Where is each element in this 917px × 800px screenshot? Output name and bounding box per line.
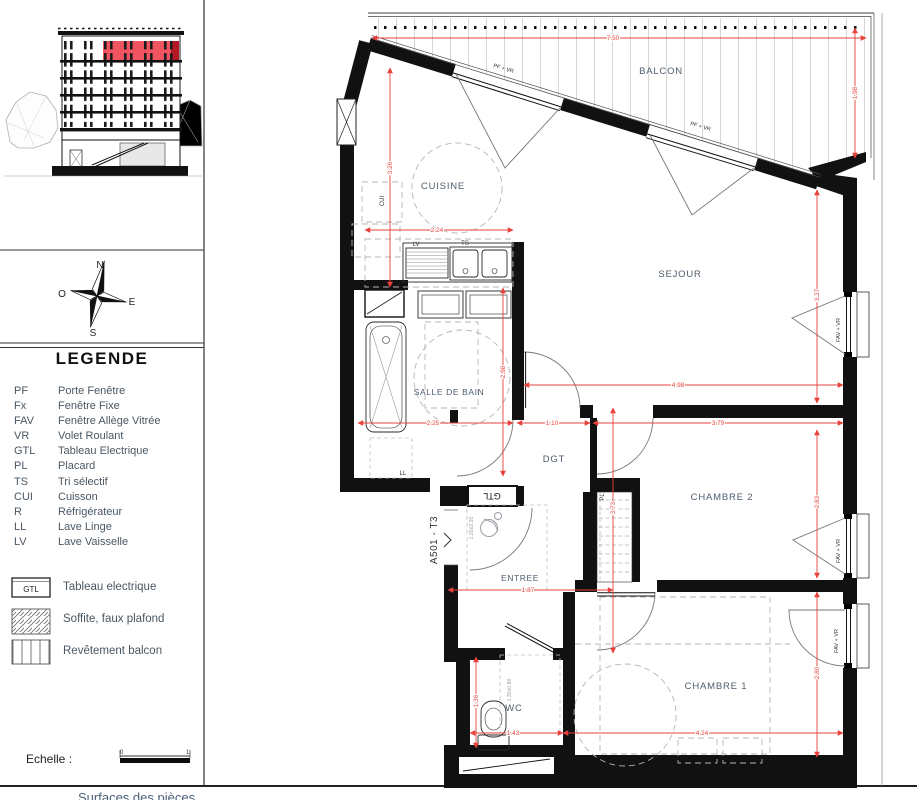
- dim-bath-width: 2.25: [427, 420, 440, 427]
- compass-west-label: O: [58, 289, 66, 300]
- legend-item: GTLTableau Electrique: [14, 444, 199, 459]
- legend-label: Tableau Electrique: [58, 444, 149, 459]
- compass-rose: N S E O: [58, 255, 136, 339]
- compass-south-label: S: [90, 328, 97, 339]
- legend-label: Porte Fenêtre: [58, 384, 125, 399]
- legend-item: FAVFenêtre Allège Vitrée: [14, 414, 199, 429]
- room-label-balcon: BALCON: [639, 66, 683, 77]
- dim-wc-height: 1.36: [473, 694, 480, 707]
- dim-ch1-height: 2.80: [814, 666, 821, 679]
- legend-item: CUICuisson: [14, 490, 199, 505]
- dim-sejour-height: 3.37: [814, 288, 821, 301]
- dim-hall-width: 1.87: [522, 587, 535, 594]
- legend-item: LVLave Vaisselle: [14, 535, 199, 550]
- building-elevation: [4, 29, 202, 177]
- legend-label: Volet Roulant: [58, 429, 123, 444]
- room-label-chambre1: CHAMBRE 1: [685, 681, 748, 692]
- dim-kitchen-width: 2.24: [431, 227, 444, 234]
- legend-label: Cuisson: [58, 490, 98, 505]
- dim-ch2-height: 2.83: [814, 495, 821, 508]
- legend-abbr: LL: [14, 520, 58, 535]
- legend-title: LEGENDE: [0, 349, 204, 369]
- dim-bath-height: 2.98: [500, 365, 507, 378]
- room-label-sejour: SEJOUR: [658, 269, 701, 280]
- dim-dgt-width: 1.10: [546, 420, 559, 427]
- scale-end: 1: [186, 750, 190, 756]
- legend-abbr: LV: [14, 535, 58, 550]
- legend-item: PLPlacard: [14, 459, 199, 474]
- room-label-wc: WC: [505, 703, 522, 714]
- footer-clipped-text: Surfaces des pièces: [78, 790, 318, 800]
- legend-label: Lave Vaisselle: [58, 535, 128, 550]
- legend-abbr: TS: [14, 475, 58, 490]
- dim-balcony-width: 7.50: [607, 35, 620, 42]
- soffit-symbol-box: [12, 609, 50, 634]
- window-label-fav-ch2: FAV + VR: [836, 539, 842, 563]
- window-label-fav-sejour: FAV + VR: [836, 318, 842, 342]
- dim-kitchen-height: 3.26: [387, 161, 394, 174]
- room-labels: BALCON CUISINE SEJOUR SALLE DE BAIN DGT …: [414, 66, 754, 714]
- gtl-plan-label: GTL: [483, 491, 501, 501]
- legend-label: Tri sélectif: [58, 475, 108, 490]
- dim-wc-width: 1.43: [507, 730, 520, 737]
- compass-east-label: E: [129, 297, 136, 308]
- legend-item: VRVolet Roulant: [14, 429, 199, 444]
- legend-item: RRéfrigérateur: [14, 505, 199, 520]
- cooktop-label: CUI: [380, 196, 386, 207]
- legend-abbr: R: [14, 505, 58, 520]
- legend-item: LLLave Linge: [14, 520, 199, 535]
- washer-label: LL: [400, 471, 407, 477]
- dishwasher: [406, 248, 448, 278]
- dishwasher-label: LV: [413, 242, 420, 248]
- door-clearance-label: 1.20x2.20: [469, 516, 475, 539]
- legend-abbr: PF: [14, 384, 58, 399]
- legend-item: TSTri sélectif: [14, 475, 199, 490]
- window-label-fav-ch1: FAV + VR: [834, 629, 840, 653]
- room-label-entree: ENTREE: [501, 573, 539, 583]
- balcony-symbol-box: [12, 640, 50, 664]
- legend-label: Réfrigérateur: [58, 505, 122, 520]
- closet-label: PL: [600, 493, 606, 501]
- legend-list: PFPorte Fenêtre FxFenêtre Fixe FAVFenêtr…: [14, 384, 199, 550]
- tree-left: [6, 92, 58, 148]
- legend-abbr: GTL: [14, 444, 58, 459]
- apartment-code-label: A501 - T3: [429, 516, 440, 564]
- room-label-dgt: DGT: [543, 454, 565, 465]
- room-label-cuisine: CUISINE: [421, 181, 465, 192]
- dim-ch1-width: 4.24: [696, 730, 709, 737]
- symbol-label-soffit: Soffite, faux plafond: [63, 613, 164, 625]
- dim-balcony-depth: 1.98: [852, 86, 859, 99]
- scale-bar: 0 1: [120, 750, 190, 763]
- legend-label: Placard: [58, 459, 95, 474]
- scale-label: Echelle :: [26, 752, 72, 766]
- floor-plan-sheet: N S E O GTL 0 1: [0, 0, 917, 800]
- sink-unit: [450, 247, 512, 280]
- wc-clearance-label: 1.30x0.80: [507, 678, 513, 701]
- legend-item: PFPorte Fenêtre: [14, 384, 199, 399]
- scale-start: 0: [120, 750, 124, 756]
- legend-abbr: Fx: [14, 399, 58, 414]
- bathtub: [366, 322, 406, 432]
- trisel-label: TS: [461, 241, 469, 247]
- dim-sejour-width: 4.98: [672, 382, 685, 389]
- entrance-chevron-icon: [444, 533, 451, 547]
- legend-abbr: PL: [14, 459, 58, 474]
- symbol-label-balcony: Revêtement balcon: [63, 645, 162, 657]
- legend-label: Fenêtre Fixe: [58, 399, 120, 414]
- wheelchair-icon: [481, 513, 502, 537]
- room-label-chambre2: CHAMBRE 2: [691, 492, 754, 503]
- symbol-label-gtl: Tableau electrique: [63, 581, 156, 593]
- compass-north-label: N: [96, 260, 103, 271]
- dim-ch2-width: 3.79: [712, 420, 725, 427]
- legend-abbr: FAV: [14, 414, 58, 429]
- legend-label: Fenêtre Allège Vitrée: [58, 414, 161, 429]
- legend-abbr: VR: [14, 429, 58, 444]
- legend-item: FxFenêtre Fixe: [14, 399, 199, 414]
- gtl-symbol-text: GTL: [23, 585, 39, 594]
- dim-hall-height: 3.73: [610, 501, 617, 514]
- legend-label: Lave Linge: [58, 520, 112, 535]
- legend-abbr: CUI: [14, 490, 58, 505]
- room-label-sdb: SALLE DE BAIN: [414, 387, 485, 397]
- legend-symbols: GTL: [12, 578, 50, 664]
